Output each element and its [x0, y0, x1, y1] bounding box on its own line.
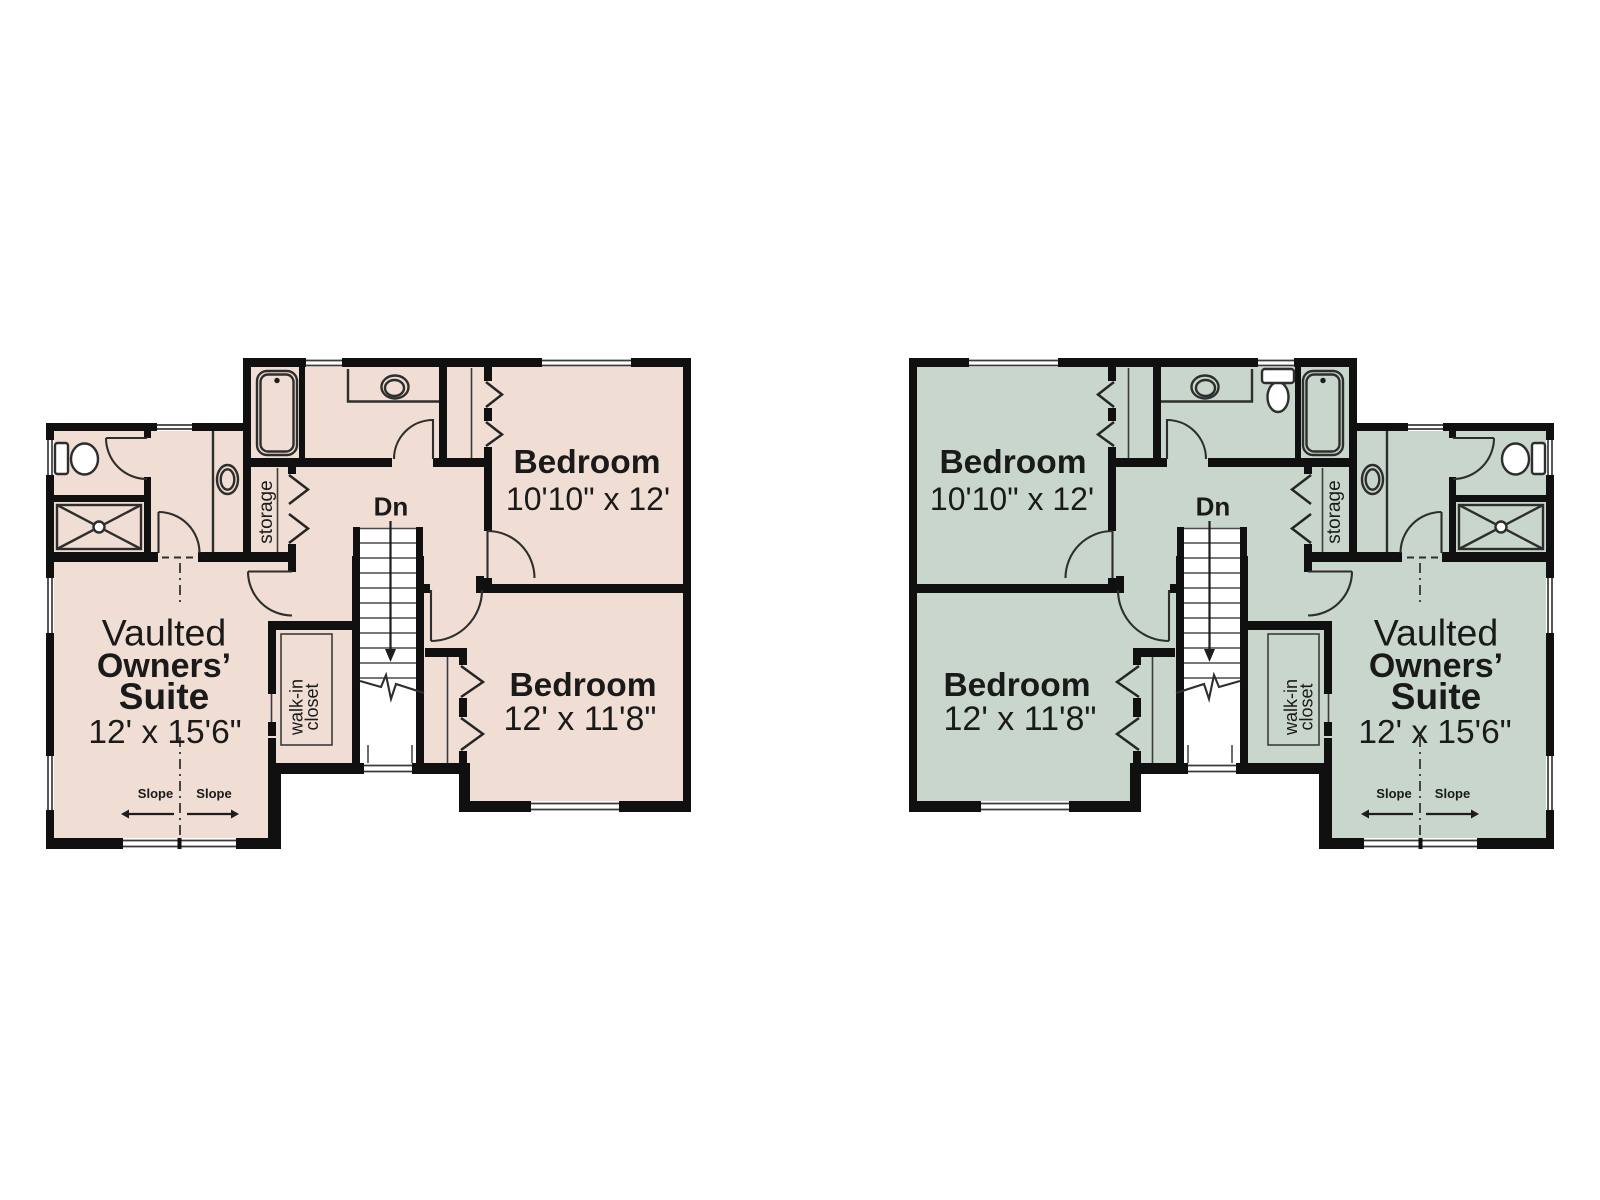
svg-text:10'10" x 12': 10'10" x 12': [506, 481, 670, 517]
svg-text:12' x 11'8": 12' x 11'8": [944, 700, 1097, 738]
svg-text:12' x 15'6": 12' x 15'6": [88, 714, 241, 751]
svg-text:Slope: Slope: [196, 786, 231, 801]
svg-text:12' x 11'8": 12' x 11'8": [504, 700, 657, 738]
svg-text:Slope: Slope: [1435, 786, 1470, 801]
svg-text:Dn: Dn: [1196, 492, 1231, 522]
svg-text:Suite: Suite: [119, 676, 209, 717]
svg-text:closet: closet: [1297, 683, 1317, 730]
svg-text:storage: storage: [1324, 480, 1345, 543]
svg-text:storage: storage: [256, 480, 277, 543]
svg-text:Bedroom: Bedroom: [513, 444, 660, 481]
svg-text:12' x 15'6": 12' x 15'6": [1358, 714, 1511, 751]
svg-text:Suite: Suite: [1391, 676, 1481, 717]
svg-text:Bedroom: Bedroom: [939, 444, 1086, 481]
svg-text:Dn: Dn: [374, 492, 409, 522]
svg-text:Bedroom: Bedroom: [509, 667, 656, 704]
svg-text:Slope: Slope: [138, 786, 173, 801]
svg-text:10'10" x 12': 10'10" x 12': [930, 481, 1094, 517]
svg-text:closet: closet: [302, 683, 322, 730]
svg-text:Slope: Slope: [1376, 786, 1411, 801]
svg-text:Bedroom: Bedroom: [943, 667, 1090, 704]
